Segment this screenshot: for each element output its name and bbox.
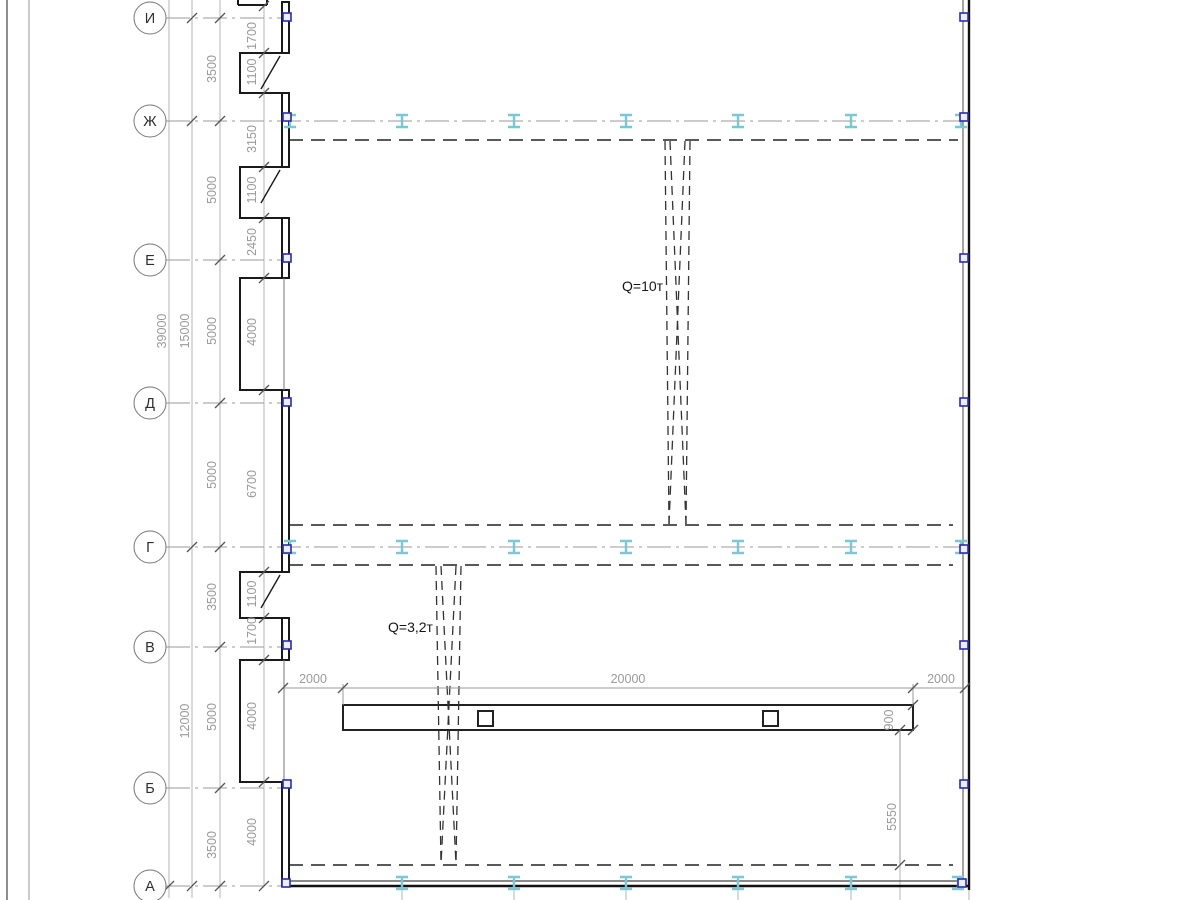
beam-hanger-2 (763, 711, 778, 726)
sheet-frame (7, 0, 29, 900)
crane-capacity-label-3-2t: Q=3,2т (388, 619, 434, 635)
axis-label: А (145, 879, 155, 895)
dim-text: 5550 (885, 803, 899, 831)
axis-label: Б (145, 781, 155, 797)
axis-label: Ж (143, 114, 157, 130)
dim-text: 2000 (927, 672, 955, 686)
axis-bubbles: И Ж Е Д Г В Б А (134, 2, 166, 900)
crane-10t-symbol (665, 141, 690, 524)
axis-label: Г (146, 540, 154, 556)
crane-labels: Q=10т Q=3,2т (388, 278, 664, 635)
axis-spacing-dims: 3500 5000 5000 5000 3500 5000 3500 (205, 55, 219, 859)
floor-plan-sheet: И Ж Е Д Г В Б А 1700 1100 3150 1100 2450… (0, 0, 1200, 900)
left-wall-openings (240, 53, 282, 782)
dim-text: 1700 (245, 617, 259, 645)
dim-text: 1100 (245, 59, 259, 86)
dim-text: 1100 (245, 177, 259, 204)
dim-text: 1700 (245, 22, 259, 50)
overall-dims: 39000 15000 12000 (155, 314, 192, 739)
axis-label: И (145, 11, 155, 27)
dim-text: 4000 (245, 318, 259, 346)
crane-runway-dashed-lines (289, 140, 958, 865)
dim-text: 15000 (178, 314, 192, 349)
dim-text: 3500 (205, 55, 219, 83)
extension-stubs (402, 865, 969, 900)
dim-text: 12000 (178, 704, 192, 739)
dim-text: 5000 (205, 176, 219, 204)
beam-hanger-1 (478, 711, 493, 726)
axis-label: В (145, 640, 155, 656)
monorail-beam (343, 705, 913, 730)
dim-text: 3500 (205, 583, 219, 611)
dim-text: 1100 (245, 581, 259, 608)
bottom-dimension-line (283, 684, 966, 705)
floor-plan-drawing: И Ж Е Д Г В Б А 1700 1100 3150 1100 2450… (0, 0, 1200, 900)
bottom-dims: 2000 20000 2000 900 5550 (299, 672, 955, 831)
crane-capacity-label-10t: Q=10т (622, 278, 664, 294)
dim-text: 3150 (245, 125, 259, 153)
dim-text: 3500 (205, 831, 219, 859)
axis-label: Д (145, 396, 155, 412)
dim-text: 2000 (299, 672, 327, 686)
dim-text: 5000 (205, 317, 219, 345)
dim-text: 39000 (155, 314, 169, 349)
right-wall (963, 0, 969, 890)
dim-text: 900 (882, 710, 896, 731)
crane-rail-symbols-middle (284, 541, 967, 553)
crane-rail-symbols-top (284, 115, 967, 127)
dim-text: 5000 (205, 703, 219, 731)
dim-text: 6700 (245, 470, 259, 498)
dim-text: 4000 (245, 818, 259, 846)
dim-text: 2450 (245, 228, 259, 256)
dim-text: 4000 (245, 702, 259, 730)
dim-text: 5000 (205, 461, 219, 489)
wall-segment-dims: 1700 1100 3150 1100 2450 4000 6700 1100 … (245, 22, 259, 846)
axis-label: Е (145, 253, 155, 269)
dim-text: 20000 (611, 672, 646, 686)
